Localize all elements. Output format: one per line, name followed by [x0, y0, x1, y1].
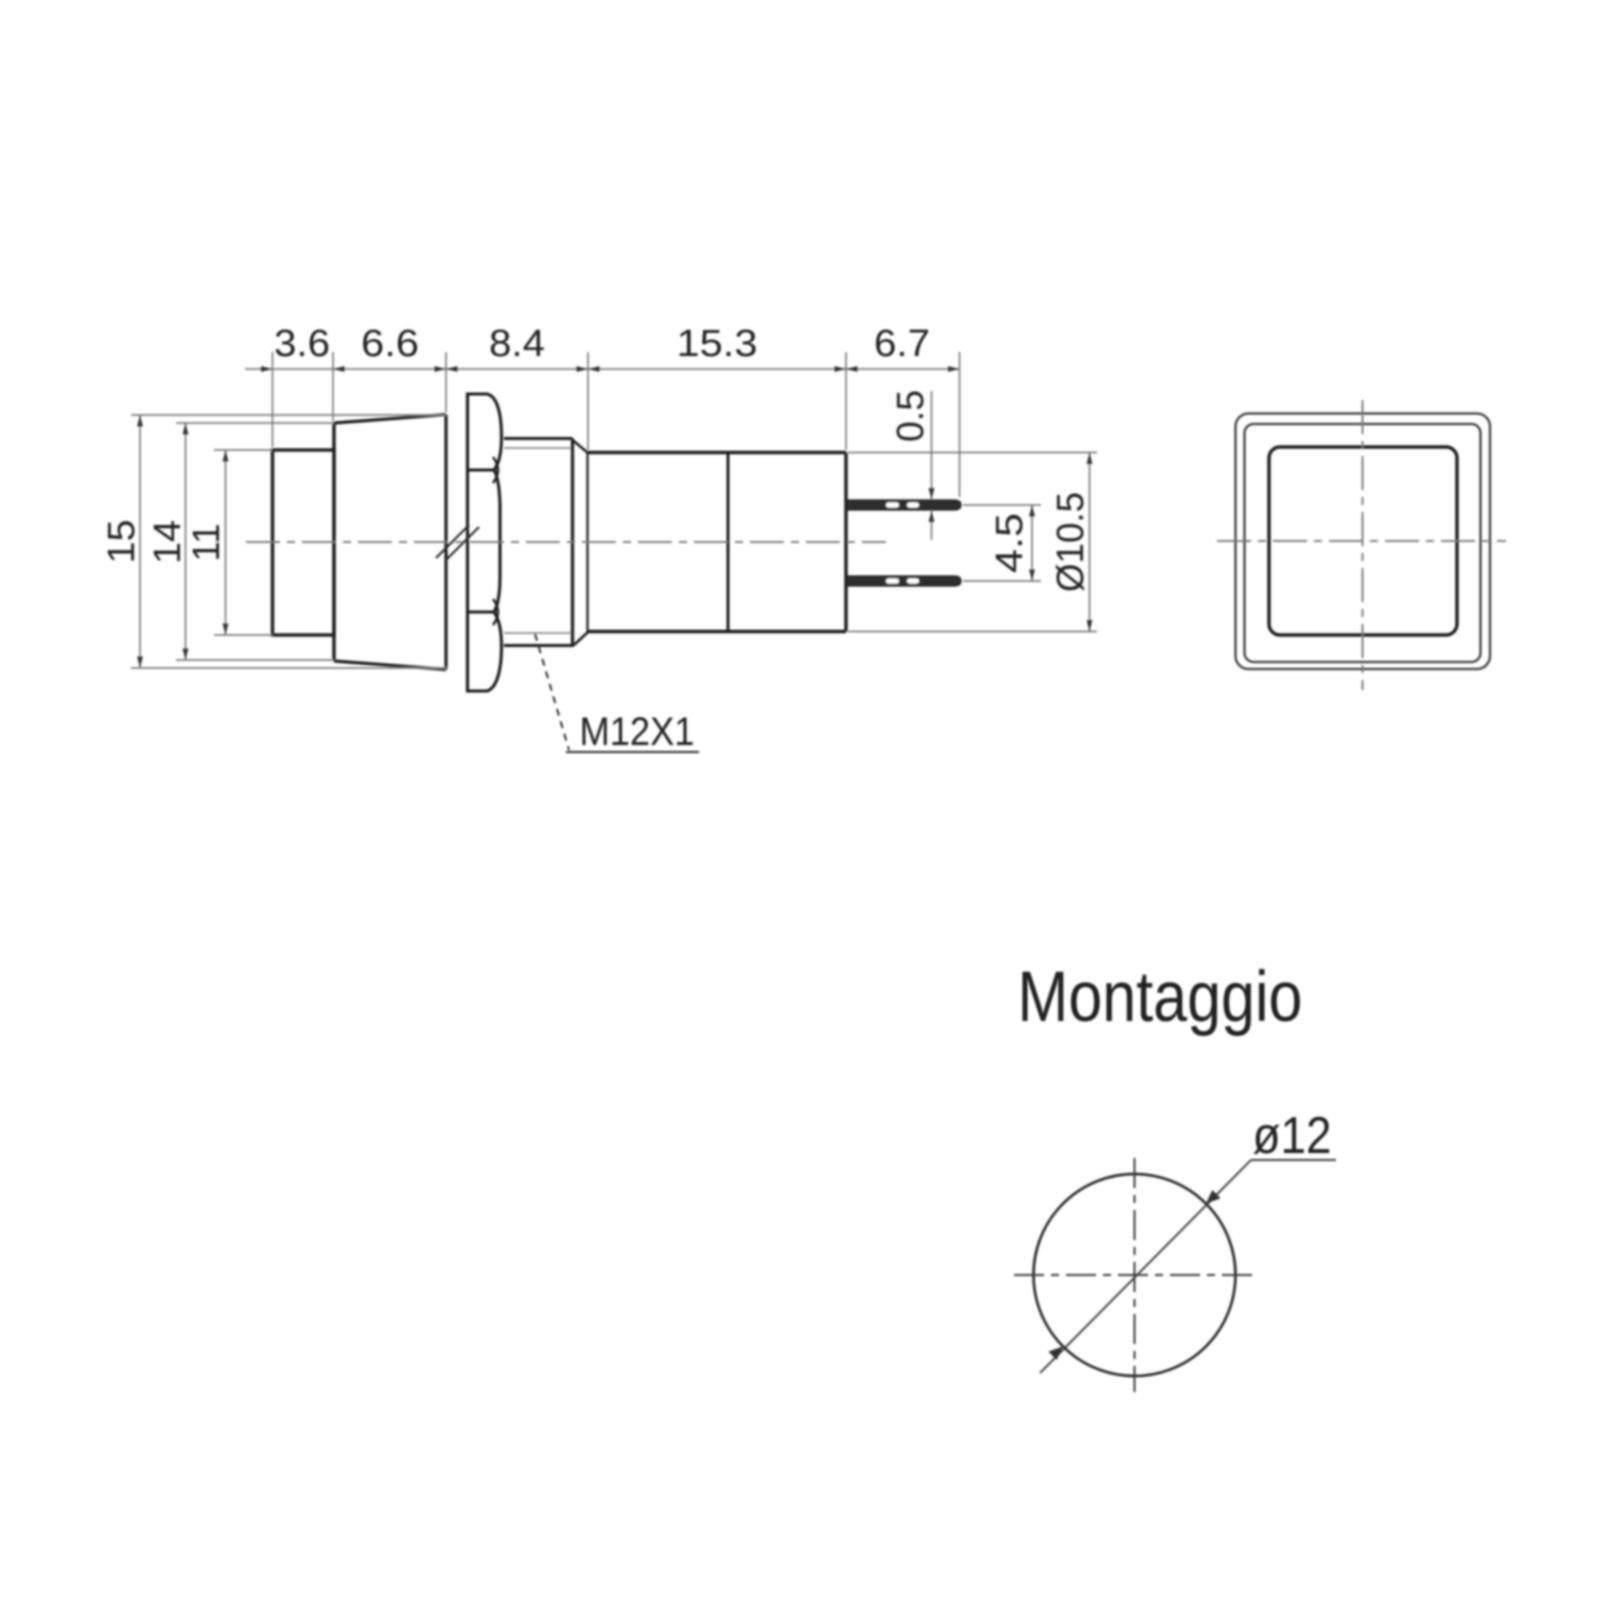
svg-text:11: 11: [186, 524, 228, 562]
svg-text:15: 15: [101, 520, 143, 564]
svg-text:M12X1: M12X1: [580, 710, 695, 754]
svg-text:8.4: 8.4: [489, 323, 545, 365]
svg-text:6.6: 6.6: [361, 323, 419, 365]
svg-text:15.3: 15.3: [677, 323, 758, 365]
svg-text:6.7: 6.7: [874, 323, 930, 365]
svg-text:ø12: ø12: [1253, 1107, 1332, 1165]
svg-text:Montaggio: Montaggio: [1018, 958, 1303, 1037]
svg-text:3.6: 3.6: [274, 323, 330, 365]
svg-text:0.5: 0.5: [890, 390, 932, 442]
svg-text:4.5: 4.5: [989, 513, 1031, 573]
svg-text:Ø10.5: Ø10.5: [1050, 492, 1092, 592]
svg-text:14: 14: [147, 520, 189, 564]
